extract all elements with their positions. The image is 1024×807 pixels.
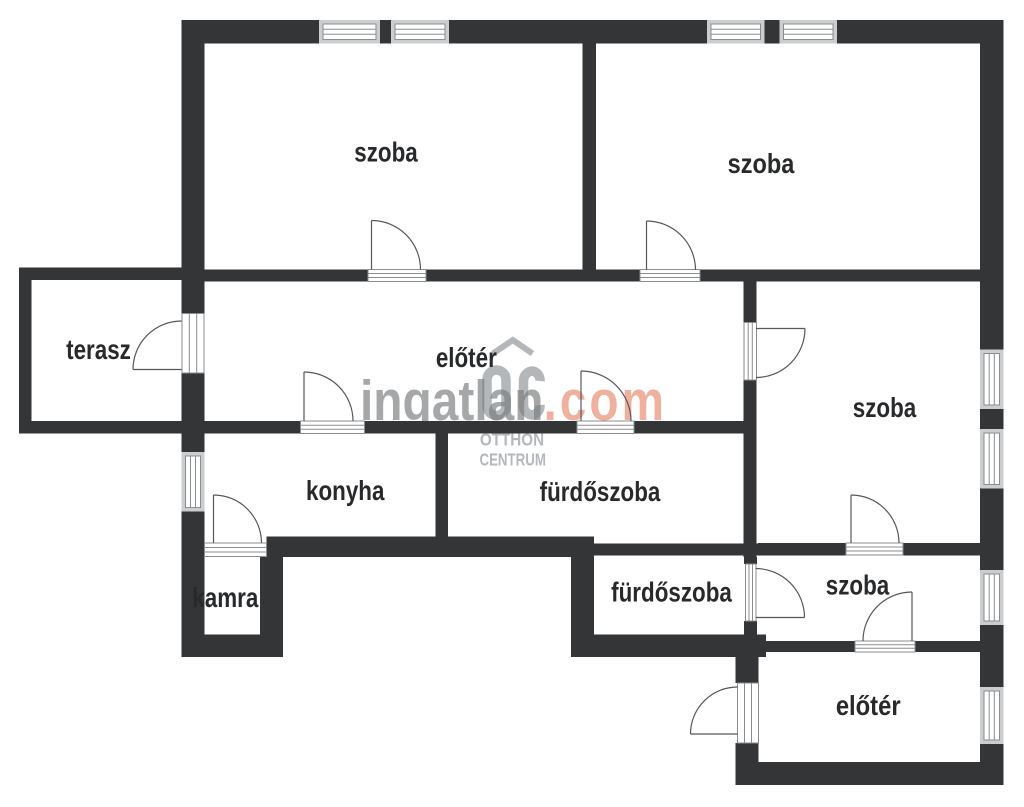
svg-text:szoba: szoba (354, 137, 418, 168)
svg-text:fürdőszoba: fürdőszoba (611, 577, 732, 608)
svg-text:CENTRUM: CENTRUM (479, 451, 545, 470)
svg-text:szoba: szoba (853, 393, 917, 424)
svg-text:fürdőszoba: fürdőszoba (540, 477, 661, 508)
svg-text:szoba: szoba (826, 570, 890, 601)
svg-text:előtér: előtér (836, 689, 901, 721)
svg-text:előtér: előtér (436, 343, 497, 374)
svg-text:kamra: kamra (192, 583, 259, 614)
svg-text:terasz: terasz (66, 335, 131, 366)
svg-text:szoba: szoba (728, 149, 795, 179)
svg-text:konyha: konyha (306, 476, 385, 507)
